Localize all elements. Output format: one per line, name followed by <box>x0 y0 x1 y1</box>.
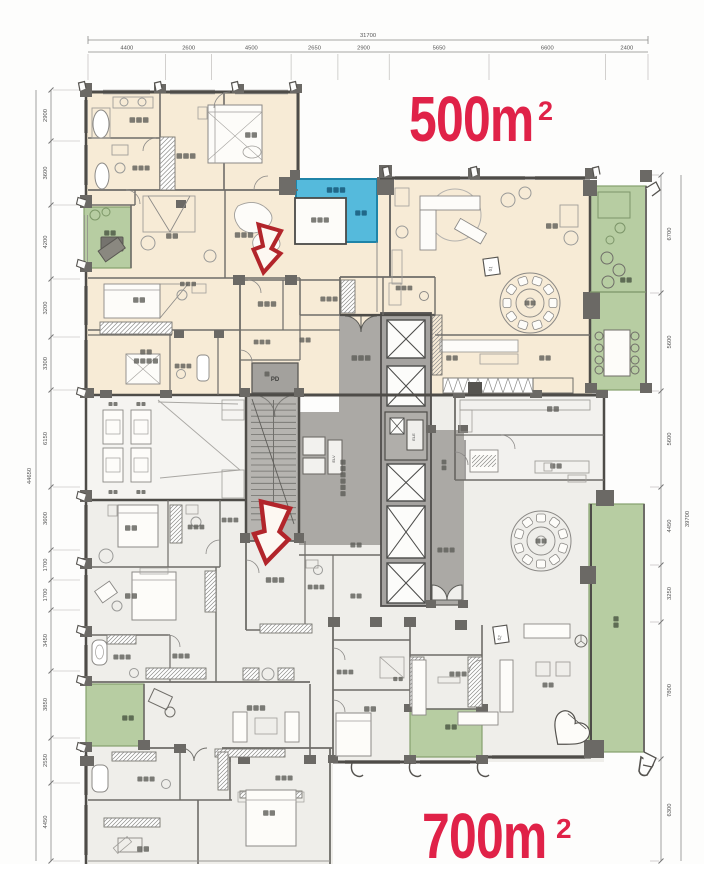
svg-text:2400: 2400 <box>620 46 633 52</box>
svg-text:6600: 6600 <box>541 46 554 52</box>
svg-text:3300: 3300 <box>43 357 49 370</box>
svg-text:2: 2 <box>538 96 553 126</box>
svg-text:3200: 3200 <box>43 302 49 315</box>
svg-text:6150: 6150 <box>43 432 49 445</box>
svg-text:2: 2 <box>556 813 572 844</box>
svg-text:39700: 39700 <box>685 511 691 527</box>
svg-text:4400: 4400 <box>120 46 133 52</box>
svg-text:2600: 2600 <box>182 46 195 52</box>
svg-text:2900: 2900 <box>43 109 49 122</box>
svg-text:500m: 500m <box>409 84 534 155</box>
svg-text:5650: 5650 <box>433 46 446 52</box>
svg-text:4450: 4450 <box>43 816 49 829</box>
svg-text:2650: 2650 <box>308 46 321 52</box>
svg-text:31700: 31700 <box>360 33 376 39</box>
svg-text:3450: 3450 <box>43 634 49 647</box>
svg-text:3850: 3850 <box>43 698 49 711</box>
svg-text:44650: 44650 <box>27 468 33 484</box>
svg-text:700m: 700m <box>422 801 547 864</box>
svg-text:ELE: ELE <box>411 433 416 441</box>
svg-text:1700: 1700 <box>43 589 49 602</box>
svg-text:2550: 2550 <box>43 754 49 767</box>
svg-text:4200: 4200 <box>43 236 49 249</box>
svg-text:5600: 5600 <box>667 336 673 349</box>
svg-text:PD: PD <box>271 377 280 383</box>
svg-text:4500: 4500 <box>245 46 258 52</box>
svg-text:5600: 5600 <box>667 433 673 446</box>
svg-text:ELV: ELV <box>331 455 336 463</box>
svg-text:6300: 6300 <box>667 804 673 817</box>
svg-text:3600: 3600 <box>43 167 49 180</box>
svg-text:7800: 7800 <box>667 684 673 697</box>
svg-text:6700: 6700 <box>667 228 673 241</box>
svg-text:3600: 3600 <box>43 512 49 525</box>
svg-text:1700: 1700 <box>43 559 49 572</box>
svg-text:2900: 2900 <box>357 46 370 52</box>
svg-text:4450: 4450 <box>667 520 673 533</box>
svg-text:3250: 3250 <box>667 587 673 600</box>
